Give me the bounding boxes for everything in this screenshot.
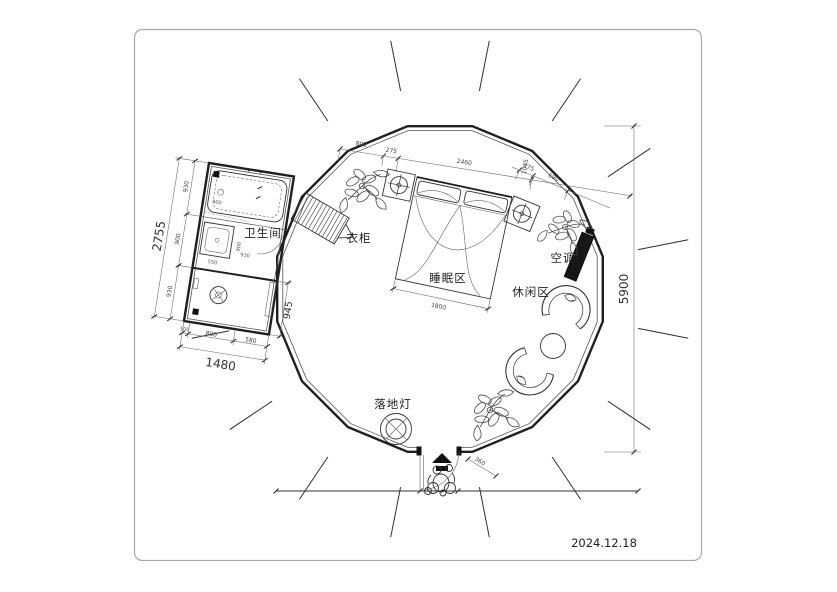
wardrobe-label: 衣柜 xyxy=(347,231,372,245)
drain-square xyxy=(213,171,220,178)
sleeping-area-label: 睡眠区 xyxy=(429,271,467,285)
floor-lamp-label: 落地灯 xyxy=(374,397,412,411)
floor-plan-page: 400 550 900 930 xyxy=(0,0,837,592)
leisure-area-label: 休闲区 xyxy=(512,285,550,299)
bathroom-label: 卫生间 xyxy=(244,226,282,240)
drain-square-2 xyxy=(192,308,199,315)
date-stamp: 2024.12.18 xyxy=(571,536,637,550)
overall-height-dim: 5900 xyxy=(617,274,631,305)
floor-plan-svg: 400 550 900 930 xyxy=(0,0,837,592)
door-post-left xyxy=(417,447,422,456)
